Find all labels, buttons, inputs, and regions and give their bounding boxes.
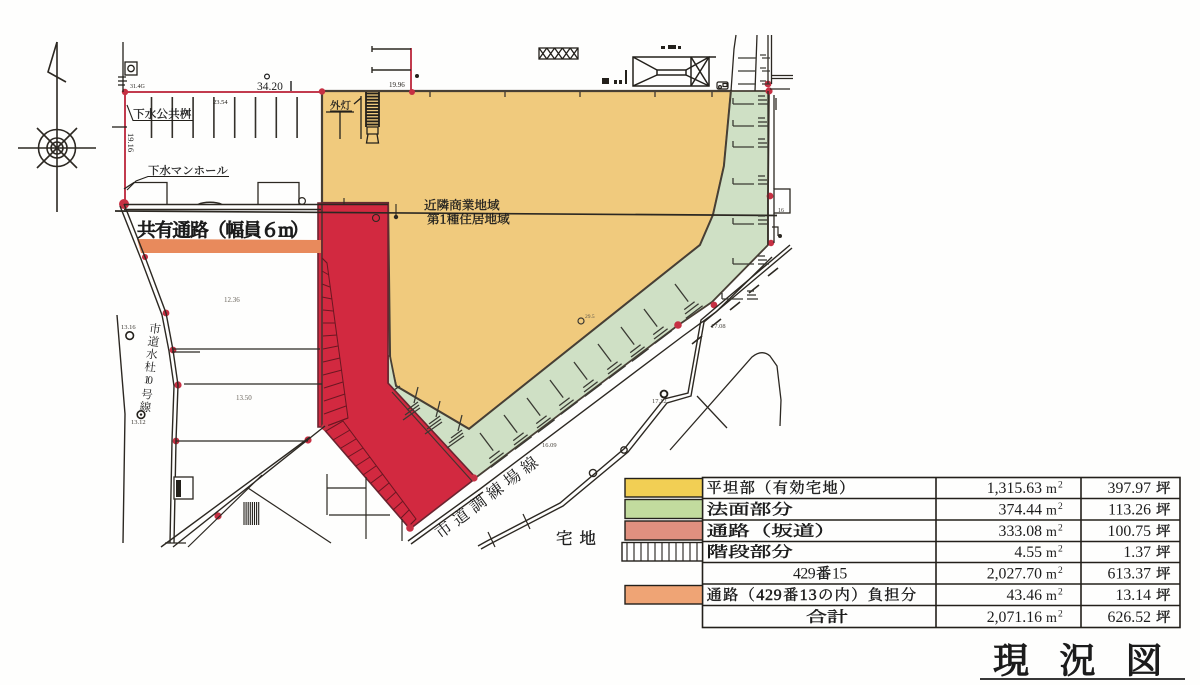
svg-text:19.96: 19.96 <box>389 81 405 89</box>
svg-text:16: 16 <box>778 208 784 214</box>
svg-text:m: m <box>1046 525 1057 540</box>
svg-text:397.97: 397.97 <box>1108 480 1152 497</box>
svg-text:2: 2 <box>1058 545 1063 555</box>
svg-text:2: 2 <box>1058 566 1063 576</box>
svg-text:23.54: 23.54 <box>213 99 228 106</box>
svg-text:1,315.63: 1,315.63 <box>987 480 1042 497</box>
svg-text:13.12: 13.12 <box>131 419 146 426</box>
svg-text:13.14: 13.14 <box>1115 587 1151 604</box>
svg-text:2: 2 <box>1058 524 1063 534</box>
svg-text:16.09: 16.09 <box>542 442 557 449</box>
svg-text:2: 2 <box>1058 502 1063 512</box>
svg-text:13.16: 13.16 <box>121 324 136 331</box>
svg-text:429: 429 <box>793 566 816 583</box>
svg-text:17.08: 17.08 <box>711 323 726 330</box>
svg-text:43.46: 43.46 <box>1006 587 1042 604</box>
svg-text:12.36: 12.36 <box>224 296 240 304</box>
svg-text:15: 15 <box>832 566 847 583</box>
svg-text:626.52: 626.52 <box>1108 609 1152 626</box>
svg-text:2: 2 <box>1058 481 1063 491</box>
svg-text:333.08: 333.08 <box>999 523 1043 540</box>
svg-text:2: 2 <box>1058 588 1063 598</box>
svg-text:100.75: 100.75 <box>1108 523 1152 540</box>
svg-text:m: m <box>1046 546 1057 561</box>
svg-text:113.26: 113.26 <box>1108 502 1151 519</box>
svg-text:1.37: 1.37 <box>1123 544 1151 561</box>
svg-text:19.16: 19.16 <box>126 133 136 152</box>
svg-text:m: m <box>1046 611 1057 626</box>
svg-text:17.12: 17.12 <box>652 398 667 405</box>
svg-text:34.20: 34.20 <box>257 81 283 93</box>
svg-text:2,027.70: 2,027.70 <box>987 566 1042 583</box>
svg-text:m: m <box>1046 568 1057 583</box>
svg-text:4.55: 4.55 <box>1014 544 1042 561</box>
svg-text:m: m <box>1046 482 1057 497</box>
svg-text:31.4G: 31.4G <box>130 84 146 90</box>
svg-text:m: m <box>1046 504 1057 519</box>
svg-text:429: 429 <box>756 587 782 604</box>
svg-text:29.5: 29.5 <box>585 314 595 320</box>
svg-text:2: 2 <box>1058 610 1063 620</box>
svg-text:2,071.16: 2,071.16 <box>987 609 1042 626</box>
svg-text:m: m <box>1046 589 1057 604</box>
svg-text:13.50: 13.50 <box>236 394 252 402</box>
svg-text:374.44: 374.44 <box>999 502 1043 519</box>
svg-text:1: 1 <box>440 212 447 227</box>
svg-text:613.37: 613.37 <box>1108 566 1152 583</box>
